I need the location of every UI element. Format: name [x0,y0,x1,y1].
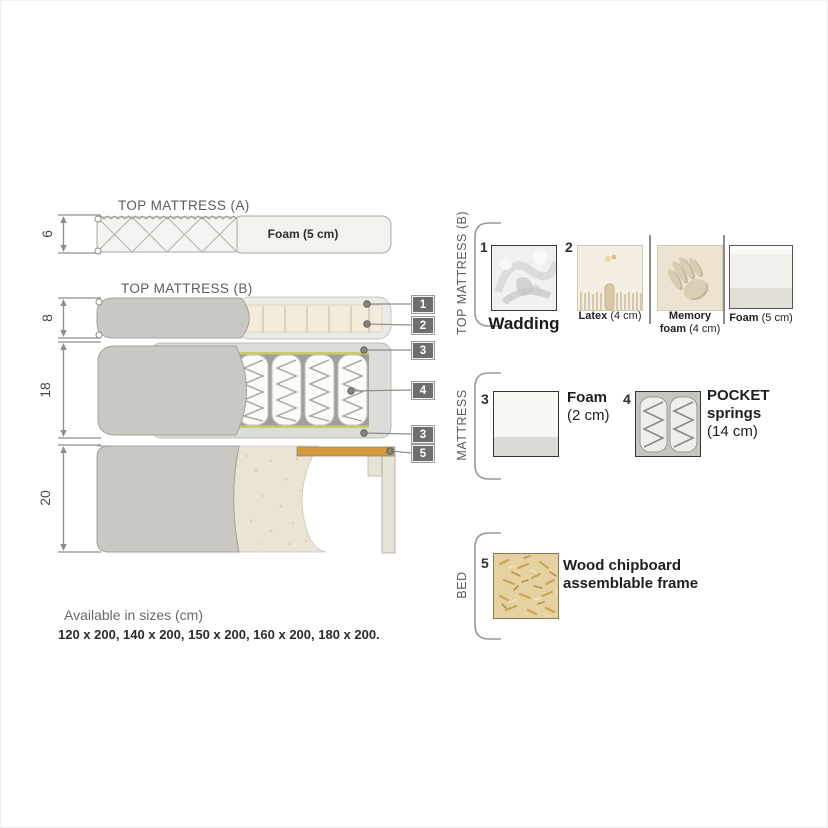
dimension-marker-6 [58,215,101,253]
wood-frame [297,447,395,553]
available-sizes-list: 120 x 200, 140 x 200, 150 x 200, 160 x 2… [58,627,380,642]
top-mattress-b-drawing [96,297,391,339]
foam-5cm-image [729,245,793,309]
foam-5cm-diagram-label: Foam (5 cm) [228,227,378,241]
option-divider-2 [723,235,725,324]
latex-label: Latex (4 cm) [575,310,645,323]
wadding-image [491,245,557,311]
callout-badge-1: 1 [412,296,434,313]
mattress-drawing [98,343,391,438]
top-mattress-b-title: TOP MATTRESS (B) [121,281,253,296]
foam-5cm-label: Foam (5 cm) [723,312,799,325]
legend-item-3-number: 3 [481,391,489,407]
callout-badge-4: 4 [412,382,434,399]
foam-2cm-image [493,391,559,457]
dimension-8: 8 [39,303,55,333]
dimension-marker-20 [58,445,101,552]
pocket-springs-label: POCKET springs (14 cm) [707,387,779,441]
dimension-20: 20 [37,483,53,513]
legend-item-1-number: 1 [480,239,488,255]
legend-item-2-number: 2 [565,239,573,255]
dimension-18: 18 [37,375,53,405]
legend-group-label-top-mattress-b: TOP MATTRESS (B) [455,208,469,338]
chipboard-frame-label: Wood chipboard assemblable frame [563,557,713,593]
option-divider-1 [649,235,651,324]
available-sizes-title: Available in sizes (cm) [64,607,203,623]
dimension-marker-18 [58,342,101,438]
callout-badge-2: 2 [412,317,434,334]
callout-badge-3-bottom: 3 [412,426,434,443]
legend-group-label-mattress: MATTRESS [455,380,469,470]
memory-foam-label: Memory foam (4 cm) [655,310,725,336]
legend-item-5-number: 5 [481,555,489,571]
top-mattress-a-title: TOP MATTRESS (A) [118,198,250,213]
legend-item-4-number: 4 [623,391,631,407]
callout-badge-3-top: 3 [412,342,434,359]
pocket-springs-image [635,391,701,457]
chipboard-image [493,553,559,619]
bed-drawing [97,446,395,553]
mattress-diagram [1,1,828,828]
legend-group-label-bed: BED [455,565,469,605]
mattress-infographic: TOP MATTRESS (A) Foam (5 cm) TOP MATTRES… [0,0,828,828]
dimension-marker-8 [58,298,101,338]
latex-image [577,245,643,311]
memory-foam-image [657,245,723,311]
dimension-6: 6 [39,219,55,249]
wadding-label: Wadding [484,314,564,334]
callout-badge-5: 5 [412,445,434,462]
